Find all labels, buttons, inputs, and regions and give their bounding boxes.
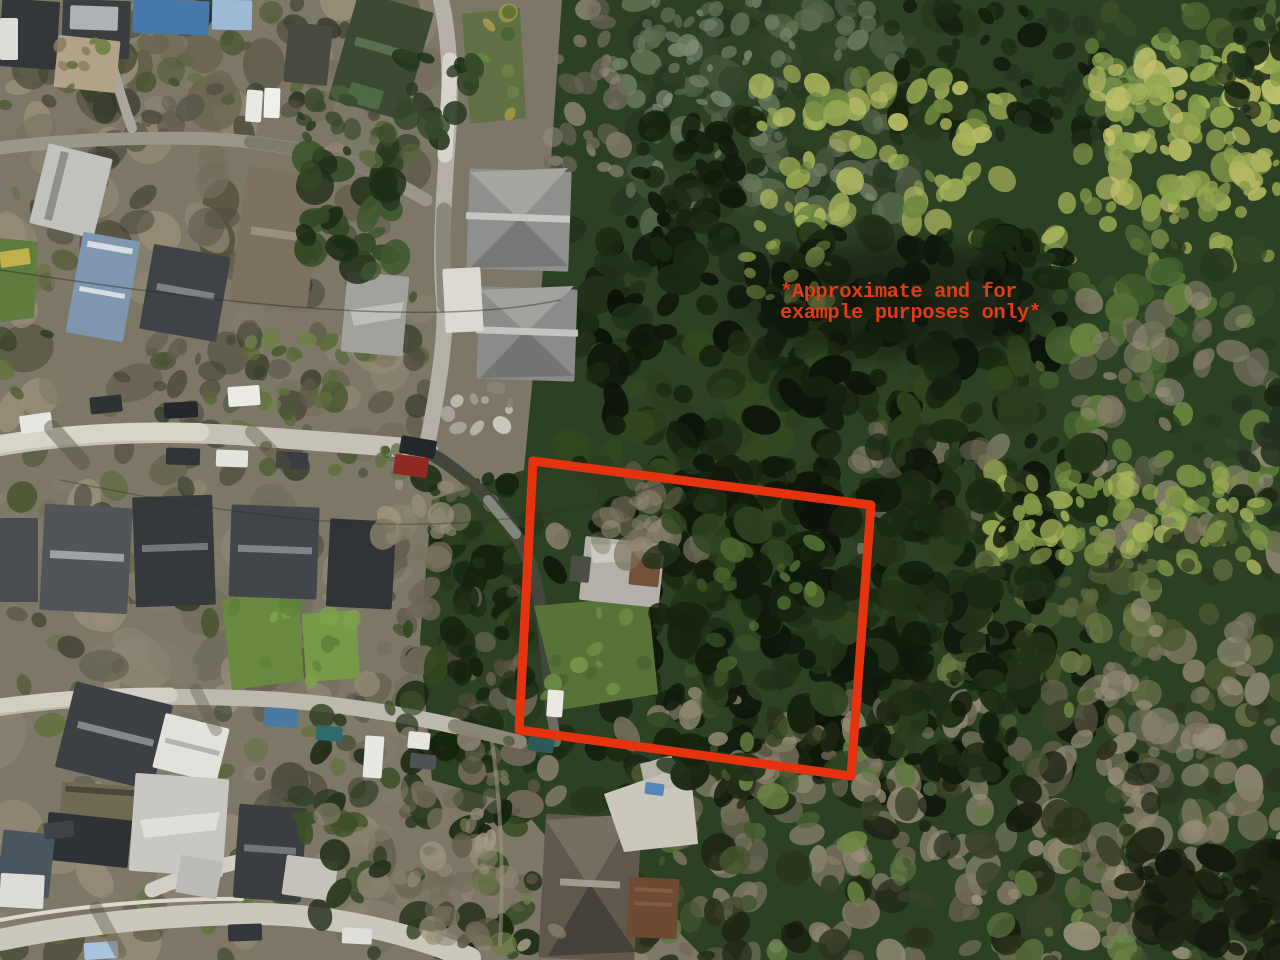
svg-text:example purposes only*: example purposes only*	[780, 302, 1041, 325]
svg-text:*Approximate and for: *Approximate and for	[780, 281, 1017, 304]
